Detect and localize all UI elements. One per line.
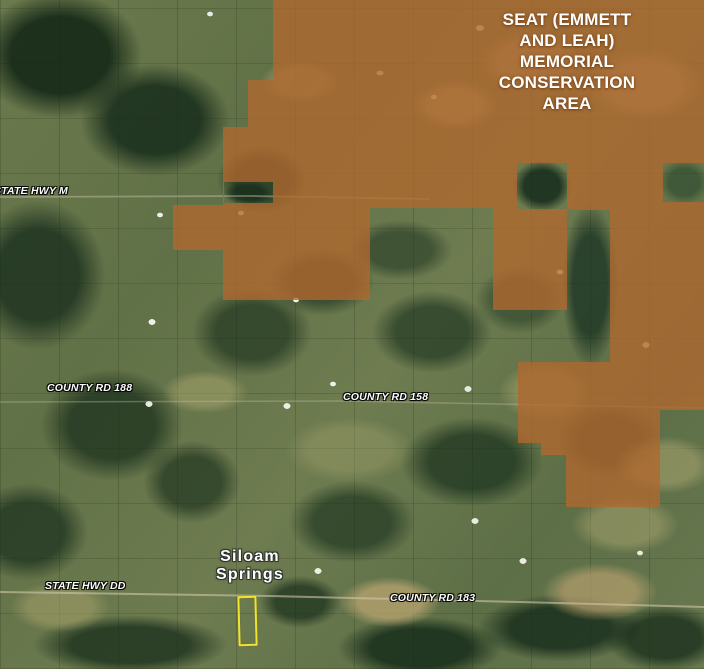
conservation-area-label-line: SEAT (EMMETT (467, 9, 667, 30)
road-label-county-rd-188: COUNTY RD 188 (47, 382, 132, 394)
conservation-area-label-line: AND LEAH) (467, 30, 667, 51)
map-canvas[interactable]: SEAT (EMMETT AND LEAH) MEMORIAL CONSERVA… (0, 0, 704, 669)
selected-parcel-marker[interactable] (237, 596, 257, 646)
road-label-state-hwy-dd: STATE HWY DD (45, 580, 126, 592)
conservation-area-label: SEAT (EMMETT AND LEAH) MEMORIAL CONSERVA… (467, 9, 667, 114)
place-label-siloam-springs: Siloam Springs (204, 548, 296, 584)
road-label-county-rd-183: COUNTY RD 183 (390, 592, 475, 604)
place-label-line: Siloam (204, 548, 296, 566)
conservation-area-label-line: AREA (467, 93, 667, 114)
conservation-area-label-line: CONSERVATION (467, 72, 667, 93)
road-label-state-hwy-m: STATE HWY M (0, 185, 68, 197)
conservation-area-label-line: MEMORIAL (467, 51, 667, 72)
road-label-county-rd-158: COUNTY RD 158 (343, 391, 428, 403)
place-label-line: Springs (204, 566, 296, 584)
